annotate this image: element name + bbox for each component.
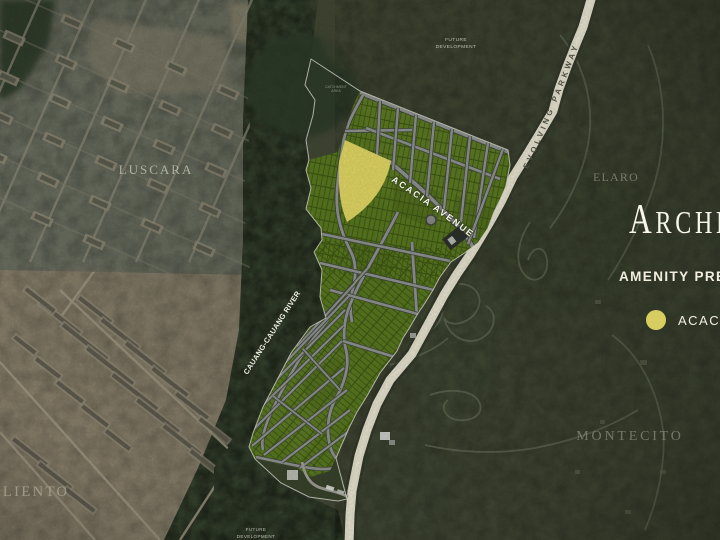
svg-text:ALIENTO: ALIENTO [0, 484, 69, 500]
svg-text:DEVELOPMENT: DEVELOPMENT [436, 44, 477, 50]
svg-text:MONTECITO: MONTECITO [576, 429, 683, 444]
svg-text:AMENITY PRESERVE: AMENITY PRESERVE [619, 269, 720, 284]
svg-text:AREA: AREA [331, 89, 341, 93]
svg-text:FUTURE: FUTURE [445, 37, 467, 43]
svg-text:FUTURE: FUTURE [246, 527, 267, 532]
svg-text:ELARO: ELARO [593, 170, 639, 184]
svg-text:ACACIA PARK: ACACIA PARK [678, 313, 720, 328]
svg-text:DEVELOPMENT: DEVELOPMENT [237, 534, 275, 539]
svg-text:LUSCARA: LUSCARA [119, 162, 194, 177]
